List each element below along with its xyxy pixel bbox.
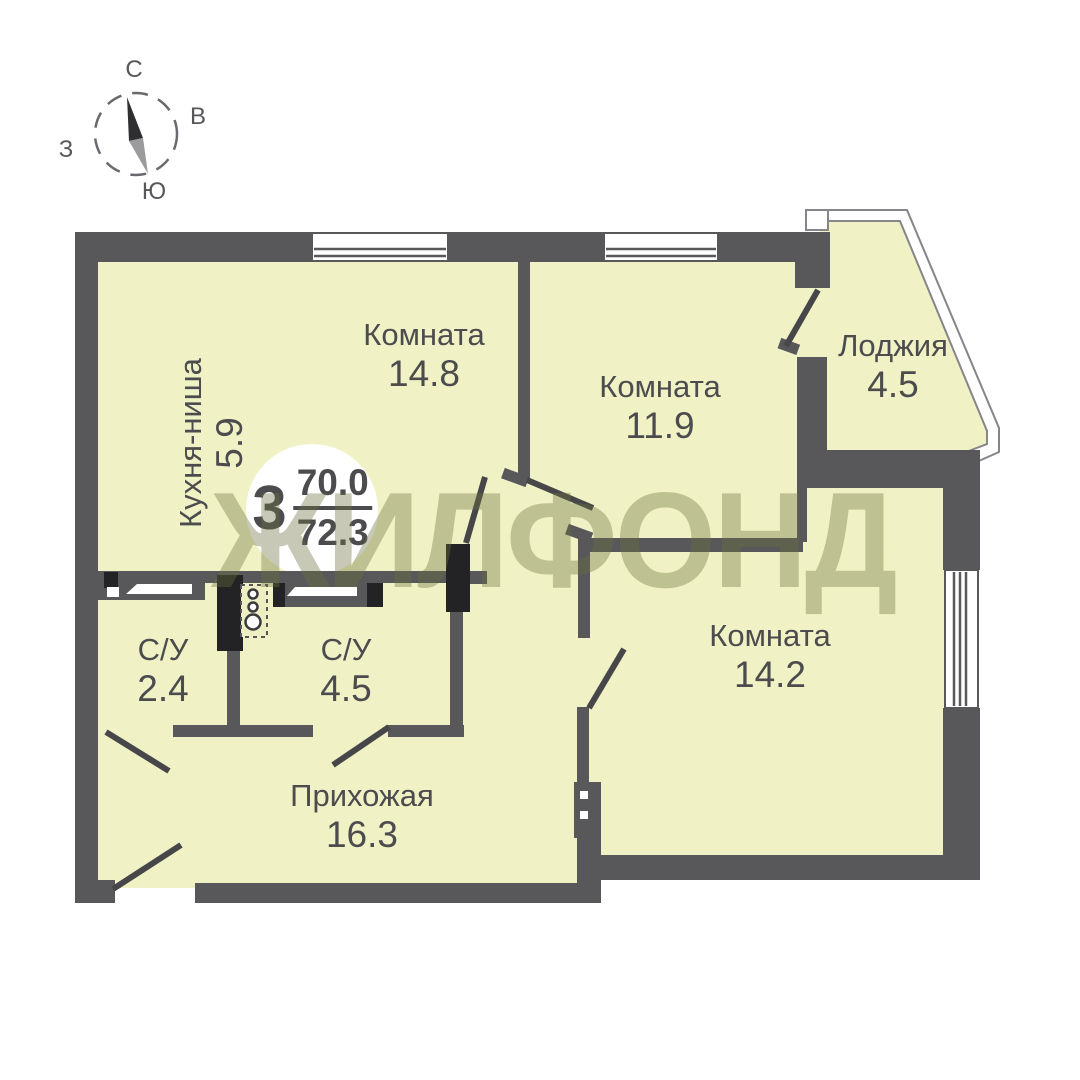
room-label-loggia: Лоджия 4.5 bbox=[838, 329, 948, 405]
room-label-kitchen-niche: Кухня-ниша 5.9 bbox=[174, 358, 250, 528]
room-name: С/У bbox=[138, 633, 189, 668]
room-label-room-11-9: Комната 11.9 bbox=[599, 370, 720, 446]
compass-needle-light bbox=[129, 138, 148, 174]
sink-right bbox=[287, 587, 357, 596]
compass-north-label: С bbox=[125, 56, 142, 84]
compass-west-label: З bbox=[59, 136, 74, 164]
room-area: 11.9 bbox=[625, 405, 694, 446]
area-fraction: 70.0 72.3 bbox=[294, 462, 372, 554]
rooms-count: 3 bbox=[252, 473, 286, 544]
room-label-bath-4-5: С/У 4.5 bbox=[320, 633, 371, 709]
living-area: 70.0 bbox=[294, 462, 372, 510]
compass-icon bbox=[95, 93, 177, 175]
room-area: 14.8 bbox=[388, 353, 460, 394]
compass-east-label: В bbox=[190, 103, 206, 131]
room-label-room-14-8: Комната 14.8 bbox=[363, 318, 484, 394]
window-room-14-2 bbox=[945, 570, 978, 708]
room-label-hallway: Прихожая 16.3 bbox=[290, 779, 434, 855]
glazing-corner-post bbox=[806, 210, 828, 230]
room-label-bath-2-4: С/У 2.4 bbox=[137, 633, 188, 709]
compass-south-label: Ю bbox=[142, 178, 166, 206]
room-name: Прихожая bbox=[290, 779, 434, 814]
area-badge: 3 70.0 72.3 bbox=[252, 462, 372, 554]
compass-needle-dark bbox=[127, 97, 143, 141]
room-area: 5.9 bbox=[209, 417, 250, 468]
total-area: 72.3 bbox=[297, 510, 369, 554]
room-area: 4.5 bbox=[867, 364, 918, 405]
sink-left bbox=[126, 584, 192, 594]
room-name: Кухня-ниша bbox=[174, 358, 209, 528]
room-area: 4.5 bbox=[320, 668, 371, 709]
vent-shaft-1 bbox=[217, 575, 243, 651]
room-area: 2.4 bbox=[137, 668, 188, 709]
vent-shaft-2 bbox=[446, 544, 470, 612]
room-area: 16.3 bbox=[326, 814, 398, 855]
room-name: Комната bbox=[709, 619, 830, 654]
floorplan-canvas: С В З Ю Кухня-ниша 5.9 Комната 14.8 Комн… bbox=[0, 0, 1080, 1080]
floorplan-drawing bbox=[0, 0, 1080, 1080]
room-name: Лоджия bbox=[838, 329, 948, 364]
room-floors bbox=[86, 222, 988, 888]
room-name: С/У bbox=[321, 633, 372, 668]
room-name: Комната bbox=[363, 318, 484, 353]
room-area: 14.2 bbox=[734, 654, 806, 695]
room-name: Комната bbox=[599, 370, 720, 405]
room-label-room-14-2: Комната 14.2 bbox=[709, 619, 830, 695]
counter-left-post bbox=[104, 572, 118, 588]
